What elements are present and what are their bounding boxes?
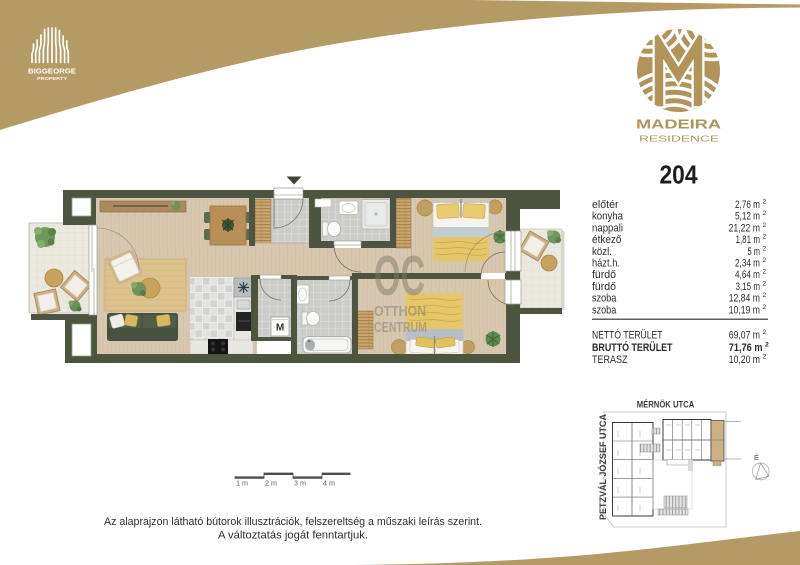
svg-text:2: 2 bbox=[763, 222, 767, 229]
svg-text:fürdő: fürdő bbox=[592, 281, 616, 293]
svg-text:4,64 m: 4,64 m bbox=[735, 269, 760, 281]
svg-text:2: 2 bbox=[765, 341, 769, 348]
svg-text:PROPERTY: PROPERTY bbox=[37, 76, 67, 81]
svg-text:21,22 m: 21,22 m bbox=[729, 222, 761, 234]
svg-text:3,15 m: 3,15 m bbox=[736, 281, 761, 293]
svg-text:2: 2 bbox=[763, 292, 767, 299]
svg-text:nappali: nappali bbox=[592, 222, 623, 234]
svg-text:PETZVÁL JÓZSEF UTCA: PETZVÁL JÓZSEF UTCA bbox=[597, 414, 608, 520]
svg-text:BRUTTÓ TERÜLET: BRUTTÓ TERÜLET bbox=[592, 341, 673, 354]
svg-text:közl.: közl. bbox=[592, 246, 612, 258]
svg-text:2 m: 2 m bbox=[265, 479, 277, 488]
svg-text:71,76 m: 71,76 m bbox=[729, 342, 763, 354]
svg-text:5,12 m: 5,12 m bbox=[735, 211, 760, 223]
svg-text:2: 2 bbox=[763, 199, 767, 206]
svg-text:TERASZ: TERASZ bbox=[592, 354, 628, 366]
svg-text:2: 2 bbox=[763, 329, 767, 336]
svg-text:2: 2 bbox=[763, 210, 767, 217]
svg-text:2: 2 bbox=[763, 280, 767, 287]
svg-text:É: É bbox=[754, 453, 759, 462]
svg-text:OC: OC bbox=[374, 244, 425, 308]
svg-text:1 m: 1 m bbox=[236, 479, 248, 488]
svg-text:2: 2 bbox=[763, 245, 767, 252]
svg-text:10,20 m: 10,20 m bbox=[729, 354, 760, 366]
svg-text:OTTHON: OTTHON bbox=[374, 304, 426, 320]
svg-text:NETTÓ TERÜLET: NETTÓ TERÜLET bbox=[592, 328, 663, 341]
svg-text:204: 204 bbox=[660, 162, 699, 190]
svg-text:CENTRUM: CENTRUM bbox=[374, 320, 427, 336]
svg-text:A változtatás jogát fenntartju: A változtatás jogát fenntartjuk. bbox=[218, 530, 368, 542]
svg-text:konyha: konyha bbox=[592, 211, 623, 223]
svg-text:előtér: előtér bbox=[592, 199, 619, 211]
svg-text:M: M bbox=[276, 323, 284, 334]
svg-text:3 m: 3 m bbox=[294, 479, 306, 488]
svg-text:házt.h.: házt.h. bbox=[592, 258, 620, 270]
svg-text:Az alaprajzon látható bútorok: Az alaprajzon látható bútorok illusztrác… bbox=[104, 516, 482, 528]
svg-text:1,81 m: 1,81 m bbox=[736, 234, 761, 246]
svg-text:2: 2 bbox=[763, 269, 767, 276]
svg-text:2: 2 bbox=[763, 257, 767, 264]
svg-text:MÉRNÖK UTCA: MÉRNÖK UTCA bbox=[637, 400, 695, 410]
svg-text:5 m: 5 m bbox=[748, 246, 761, 258]
svg-text:szoba: szoba bbox=[592, 304, 616, 316]
svg-text:2: 2 bbox=[763, 234, 767, 241]
svg-text:12,84 m: 12,84 m bbox=[729, 293, 760, 305]
svg-text:MADEIRA: MADEIRA bbox=[636, 117, 721, 132]
svg-text:10,19 m: 10,19 m bbox=[729, 304, 760, 316]
svg-text:2: 2 bbox=[763, 304, 767, 311]
svg-text:2,34 m: 2,34 m bbox=[735, 258, 760, 270]
svg-text:69,07 m: 69,07 m bbox=[729, 329, 760, 341]
svg-text:2,76 m: 2,76 m bbox=[735, 199, 760, 211]
svg-text:fürdő: fürdő bbox=[592, 269, 616, 281]
svg-text:RESIDENCE: RESIDENCE bbox=[639, 133, 720, 143]
svg-text:2: 2 bbox=[763, 354, 767, 361]
svg-text:szoba: szoba bbox=[592, 293, 616, 305]
svg-text:4 m: 4 m bbox=[323, 479, 335, 488]
svg-text:BIGGEORGE: BIGGEORGE bbox=[28, 67, 76, 76]
svg-text:étkező: étkező bbox=[592, 234, 622, 246]
